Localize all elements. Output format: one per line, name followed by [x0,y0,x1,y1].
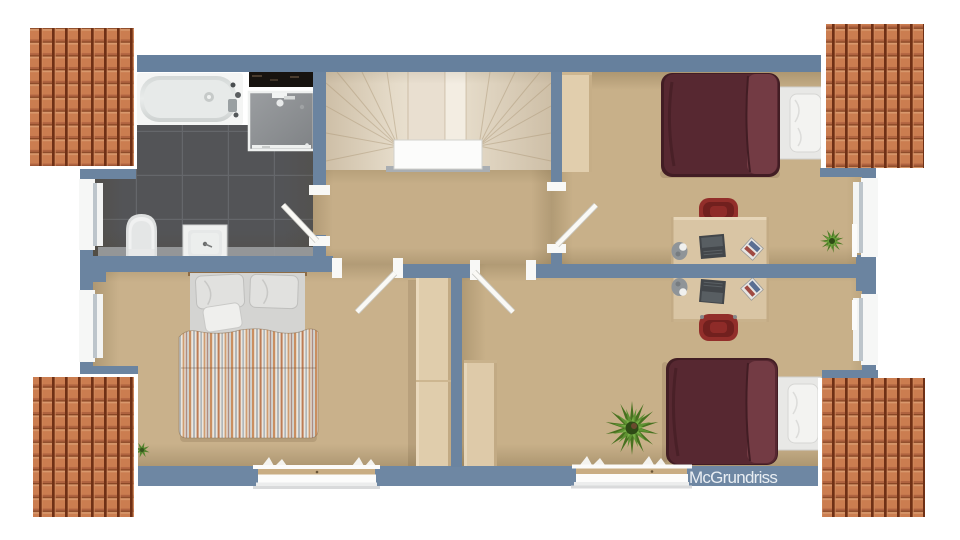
svg-text:McGrundriss: McGrundriss [689,468,777,487]
